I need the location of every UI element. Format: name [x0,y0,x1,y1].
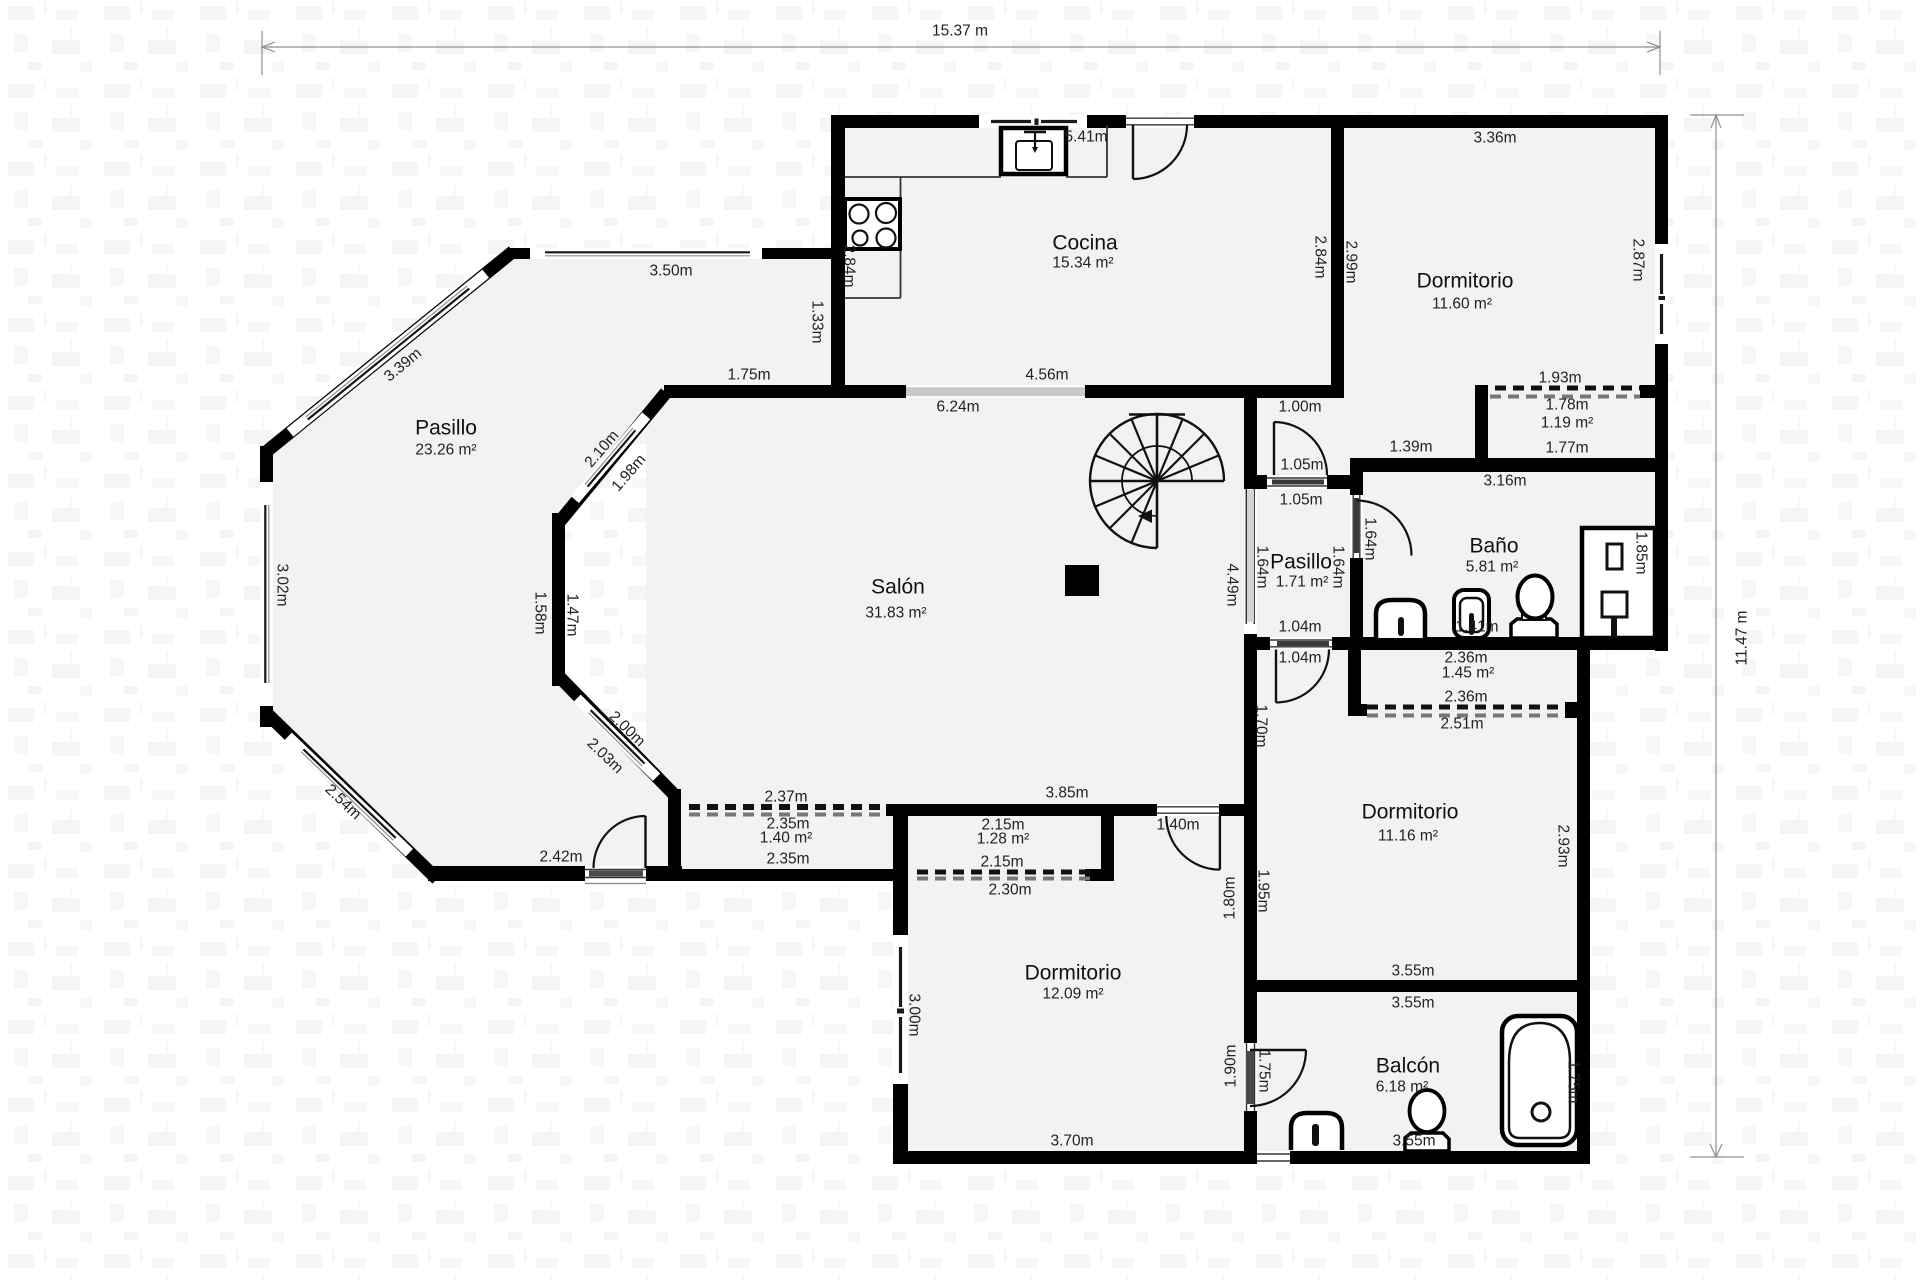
svg-text:11.47 m: 11.47 m [1734,611,1751,666]
svg-text:Pasillo: Pasillo [415,417,477,440]
svg-text:6.24m: 6.24m [936,399,979,416]
svg-text:Dormitorio: Dormitorio [1417,270,1514,293]
svg-text:2.84m: 2.84m [1312,235,1329,278]
svg-text:15.34 m²: 15.34 m² [1052,255,1113,272]
svg-text:1.39m: 1.39m [1389,439,1432,456]
svg-text:1.90m: 1.90m [1223,1044,1240,1087]
svg-text:3.16m: 3.16m [1483,473,1526,490]
svg-text:2.36m: 2.36m [1444,689,1487,706]
svg-text:1.93m: 1.93m [1538,370,1581,387]
svg-text:3.55m: 3.55m [1391,995,1434,1012]
svg-text:1.04m: 1.04m [1278,619,1321,636]
svg-text:Dormitorio: Dormitorio [1362,801,1459,824]
svg-text:1.05m: 1.05m [1279,492,1322,509]
svg-text:2.84m: 2.84m [841,244,858,287]
svg-text:Salón: Salón [871,576,925,599]
svg-text:6.18 m²: 6.18 m² [1376,1079,1429,1096]
svg-text:Dormitorio: Dormitorio [1025,962,1122,985]
svg-text:3.70m: 3.70m [1050,1133,1093,1150]
svg-text:1.95m: 1.95m [1255,869,1272,912]
svg-text:1.28 m²: 1.28 m² [977,831,1030,848]
svg-text:2.93m: 2.93m [1555,824,1572,867]
svg-text:Pasillo: Pasillo [1270,551,1332,574]
svg-text:2.99m: 2.99m [1343,240,1360,283]
svg-text:1.41m: 1.41m [1455,619,1498,636]
svg-text:1.04m: 1.04m [1278,650,1321,667]
svg-text:1.05m: 1.05m [1280,457,1323,474]
svg-text:11.16 m²: 11.16 m² [1378,828,1438,845]
svg-text:1.64m: 1.64m [1362,517,1379,560]
svg-text:1.33m: 1.33m [809,300,826,343]
svg-text:5.81 m²: 5.81 m² [1466,559,1519,576]
svg-text:1.77m: 1.77m [1545,440,1588,457]
svg-text:1.71 m²: 1.71 m² [1276,574,1329,591]
svg-text:2.37m: 2.37m [764,789,807,806]
svg-text:12.09 m²: 12.09 m² [1042,986,1103,1003]
svg-text:1.75m: 1.75m [1565,1060,1582,1103]
svg-text:4.49m: 4.49m [1224,563,1241,606]
svg-text:3.36m: 3.36m [1473,130,1516,147]
svg-text:1.40m: 1.40m [1156,817,1199,834]
svg-text:1.00m: 1.00m [1278,399,1321,416]
svg-text:1.75m: 1.75m [727,367,770,384]
svg-text:1.40 m²: 1.40 m² [760,830,813,847]
svg-text:1.70m: 1.70m [1253,704,1270,747]
svg-text:3.55m: 3.55m [1391,963,1434,980]
svg-text:2.35m: 2.35m [766,851,809,868]
svg-text:Baño: Baño [1469,535,1518,558]
svg-text:3.55m: 3.55m [1392,1133,1435,1150]
svg-text:5.41m: 5.41m [1064,129,1107,146]
svg-text:2.15m: 2.15m [980,854,1023,871]
svg-text:31.83 m²: 31.83 m² [865,605,926,622]
svg-text:3.00m: 3.00m [906,993,923,1036]
svg-text:1.80m: 1.80m [1222,876,1239,919]
svg-text:1.58m: 1.58m [532,591,549,634]
svg-text:1.78m: 1.78m [1545,397,1588,414]
svg-text:11.60 m²: 11.60 m² [1432,296,1492,313]
svg-text:15.37 m: 15.37 m [932,23,988,40]
svg-text:1.75m: 1.75m [1256,1049,1273,1092]
svg-text:1.47m: 1.47m [564,593,581,636]
svg-text:1.19 m²: 1.19 m² [1541,415,1594,432]
svg-text:1.64m: 1.64m [1254,545,1271,588]
svg-text:1.85m: 1.85m [1633,531,1650,574]
svg-text:3.85m: 3.85m [1045,785,1088,802]
svg-text:Balcón: Balcón [1376,1055,1440,1078]
svg-text:1.64m: 1.64m [1330,545,1347,588]
svg-text:Cocina: Cocina [1052,232,1118,255]
svg-text:1.45 m²: 1.45 m² [1442,665,1495,682]
svg-text:2.30m: 2.30m [988,882,1031,899]
svg-text:3.50m: 3.50m [649,263,692,280]
svg-text:2.87m: 2.87m [1630,238,1647,281]
svg-text:4.56m: 4.56m [1025,367,1068,384]
svg-text:2.51m: 2.51m [1440,716,1483,733]
svg-text:23.26 m²: 23.26 m² [415,442,476,459]
svg-text:3.02m: 3.02m [274,563,291,606]
svg-text:2.42m: 2.42m [539,849,582,866]
